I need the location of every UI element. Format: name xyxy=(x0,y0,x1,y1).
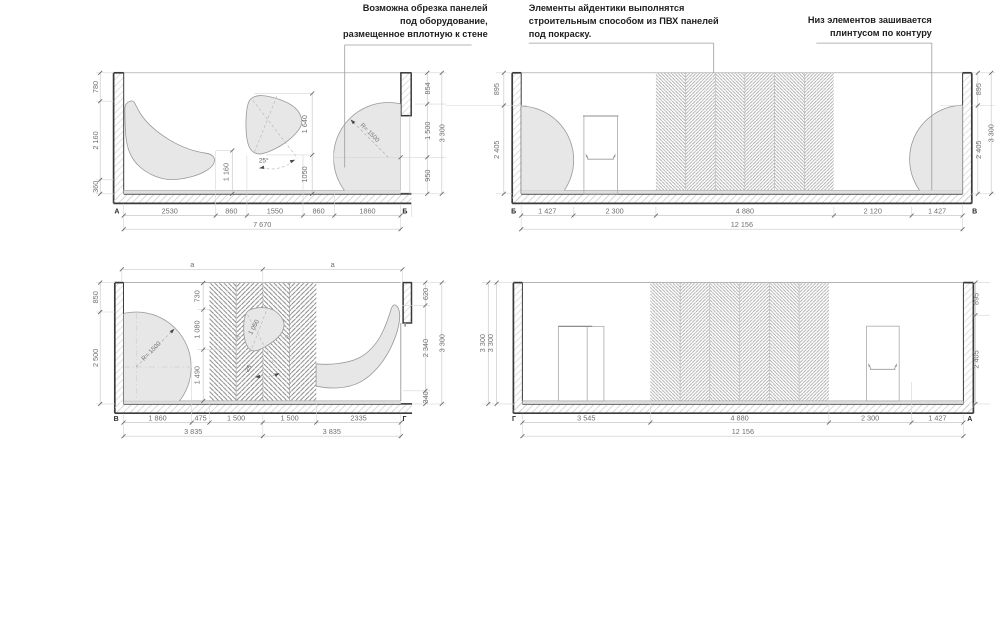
svg-text:25°: 25° xyxy=(259,157,269,165)
svg-text:780: 780 xyxy=(91,81,100,93)
svg-text:2 300: 2 300 xyxy=(861,413,879,422)
svg-text:4 880: 4 880 xyxy=(730,413,748,422)
svg-text:854: 854 xyxy=(423,82,432,94)
svg-text:860: 860 xyxy=(225,206,237,215)
svg-text:под оборудование,: под оборудование, xyxy=(400,16,488,26)
svg-text:1 500: 1 500 xyxy=(423,122,432,140)
svg-text:Г: Г xyxy=(512,416,516,423)
svg-text:плинтусом по контуру: плинтусом по контуру xyxy=(830,28,933,38)
svg-text:Б: Б xyxy=(511,208,516,215)
svg-text:340: 340 xyxy=(421,391,430,403)
svg-text:1 080: 1 080 xyxy=(192,320,201,338)
svg-text:12 156: 12 156 xyxy=(732,427,754,436)
svg-text:Низ элементов зашивается: Низ элементов зашивается xyxy=(808,15,932,25)
svg-text:2530: 2530 xyxy=(162,206,178,215)
svg-text:620: 620 xyxy=(421,288,430,300)
svg-text:3 300: 3 300 xyxy=(987,124,996,142)
svg-text:950: 950 xyxy=(423,170,432,182)
svg-text:4 880: 4 880 xyxy=(736,206,754,215)
svg-text:1050: 1050 xyxy=(300,166,309,182)
svg-text:Б: Б xyxy=(402,208,407,215)
svg-text:2335: 2335 xyxy=(350,413,366,422)
svg-text:360: 360 xyxy=(91,181,100,193)
svg-text:1 490: 1 490 xyxy=(192,366,201,384)
svg-text:2 300: 2 300 xyxy=(605,206,623,215)
svg-text:1 427: 1 427 xyxy=(928,413,946,422)
svg-text:2 405: 2 405 xyxy=(974,141,983,159)
svg-text:1 860: 1 860 xyxy=(148,413,166,422)
svg-text:А: А xyxy=(114,208,119,215)
svg-text:7 670: 7 670 xyxy=(253,220,271,229)
svg-text:В: В xyxy=(114,416,119,423)
svg-text:895: 895 xyxy=(972,293,981,305)
svg-text:1 500: 1 500 xyxy=(280,413,298,422)
svg-text:730: 730 xyxy=(192,290,201,302)
svg-text:Элементы айдентики выполнятся: Элементы айдентики выполнятся xyxy=(529,3,685,13)
svg-text:3 300: 3 300 xyxy=(437,334,446,352)
svg-text:Г: Г xyxy=(403,416,407,423)
svg-text:В: В xyxy=(972,208,977,215)
svg-text:размещенное вплотную к стене: размещенное вплотную к стене xyxy=(343,29,488,39)
svg-text:895: 895 xyxy=(974,83,983,95)
svg-text:3 545: 3 545 xyxy=(577,413,595,422)
svg-text:895: 895 xyxy=(492,83,501,95)
svg-text:3 300: 3 300 xyxy=(486,334,495,352)
svg-text:2 405: 2 405 xyxy=(492,141,501,159)
svg-text:2 500: 2 500 xyxy=(91,349,100,367)
svg-text:12 156: 12 156 xyxy=(731,220,753,229)
svg-text:Возможна обрезка панелей: Возможна обрезка панелей xyxy=(363,3,488,13)
svg-text:2 405: 2 405 xyxy=(972,350,981,368)
svg-text:2 340: 2 340 xyxy=(421,339,430,357)
svg-text:850: 850 xyxy=(91,291,100,303)
svg-text:строительным способом из ПВХ п: строительным способом из ПВХ панелей xyxy=(529,16,719,26)
svg-text:под покраску.: под покраску. xyxy=(529,29,591,39)
svg-text:1 427: 1 427 xyxy=(928,206,946,215)
svg-text:2 120: 2 120 xyxy=(864,206,882,215)
svg-text:3 835: 3 835 xyxy=(184,427,202,436)
svg-text:3 835: 3 835 xyxy=(323,427,341,436)
svg-text:1550: 1550 xyxy=(267,206,283,215)
svg-text:3 300: 3 300 xyxy=(437,124,446,142)
svg-text:1 427: 1 427 xyxy=(538,206,556,215)
svg-text:А: А xyxy=(967,416,972,423)
svg-text:1 500: 1 500 xyxy=(227,413,245,422)
svg-text:1 160: 1 160 xyxy=(222,163,231,181)
svg-text:1860: 1860 xyxy=(359,206,375,215)
svg-text:1 640: 1 640 xyxy=(300,115,309,133)
svg-text:2 160: 2 160 xyxy=(91,131,100,149)
svg-text:475: 475 xyxy=(195,413,207,422)
svg-text:860: 860 xyxy=(313,206,325,215)
